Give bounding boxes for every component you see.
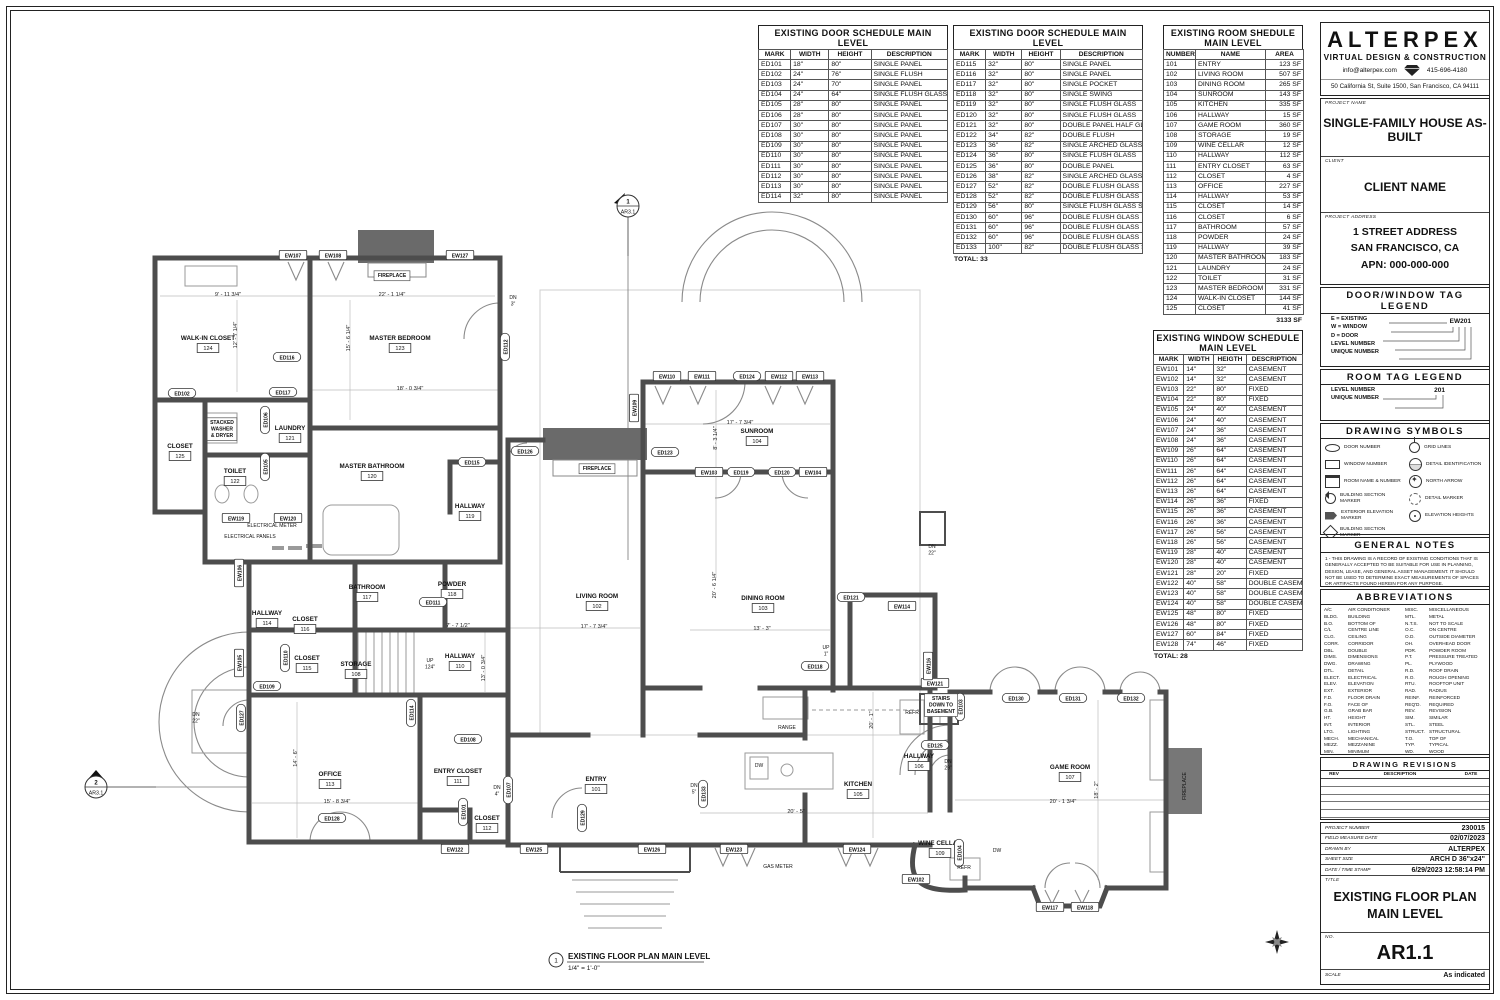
- client-name: CLIENT NAME: [1321, 164, 1489, 212]
- svg-text:104: 104: [752, 439, 761, 445]
- revision-header: REV: [1321, 772, 1347, 777]
- window-tag: EW110: [653, 371, 681, 380]
- room-label: CLOSET116: [292, 616, 318, 634]
- north-arrow-icon: [1265, 930, 1289, 954]
- svg-text:KITCHEN: KITCHEN: [844, 781, 872, 788]
- door-tag: ED123: [651, 447, 679, 456]
- abbreviation-row: EXT.EXTERIOR: [1324, 688, 1405, 695]
- plan-note: UP1": [823, 645, 831, 657]
- room-label: OFFICE113: [318, 771, 341, 789]
- room-label: KITCHEN105: [844, 781, 872, 799]
- svg-text:EW102: EW102: [908, 877, 925, 883]
- door-tag: ED107: [503, 776, 512, 804]
- abbreviation-row: MISC.MISCELLANEOUS: [1405, 607, 1486, 614]
- svg-text:OFFICE: OFFICE: [318, 771, 341, 778]
- plan-note: FIREPLACE: [1182, 771, 1188, 799]
- window-tag: EW114: [888, 601, 916, 610]
- svg-text:RANGE: RANGE: [778, 725, 796, 731]
- dimension-text: 18' - 0 3/4": [397, 386, 424, 392]
- door-tag: ED130: [1002, 693, 1030, 702]
- door-tag: ED133: [698, 780, 707, 808]
- symbol-label: GRID LINES: [1424, 445, 1451, 451]
- abbreviation-row: P.T.PRESSURE TREATED: [1405, 654, 1486, 661]
- plan-note: UP124": [425, 658, 435, 670]
- svg-text:EW121: EW121: [927, 681, 944, 687]
- symbol-item: NORTH ARROW: [1405, 473, 1489, 490]
- sheet-title: EXISTING FLOOR PLAN MAIN LEVEL: [1321, 883, 1489, 932]
- abbreviation-row: F.D.FLOOR DRAIN: [1324, 695, 1405, 702]
- svg-text:FIREPLACE: FIREPLACE: [1182, 771, 1188, 799]
- building-section-marker: 1AR3.1: [614, 193, 639, 256]
- symbol-label: DETAIL IDENTIFICATION: [1426, 462, 1481, 468]
- abbreviation-row: N.T.S.NOT TO SCALE: [1405, 621, 1486, 628]
- revisions-title: DRAWING REVISIONS: [1321, 758, 1489, 771]
- abbreviation-row: ELECT.ELECTRICAL: [1324, 675, 1405, 682]
- abbreviation-row: STRUCT.STRUCTURAL: [1405, 729, 1486, 736]
- dimension-text: 9' - 11 3/4": [215, 292, 241, 298]
- window-tag: EW106: [234, 559, 243, 587]
- window-tag: EW105: [234, 649, 243, 677]
- scale-label: SCALE: [1325, 973, 1341, 978]
- svg-text:125: 125: [175, 454, 184, 460]
- svg-text:TOILET: TOILET: [224, 468, 246, 475]
- svg-text:DN: DN: [509, 295, 517, 301]
- dimension-text: 20' - 6 1/4": [712, 572, 718, 599]
- gem-logo-icon: [1404, 65, 1420, 76]
- room-label: MASTER BEDROOM123: [369, 335, 430, 353]
- room-label: HALLWAY114: [252, 610, 283, 628]
- room-label: LAUNDRY121: [275, 425, 306, 443]
- svg-text:STORAGE: STORAGE: [340, 661, 371, 668]
- svg-text:114: 114: [263, 621, 272, 627]
- abbreviations: ABBREVIATIONS A/CAIR CONDITIONERBLDG.BUI…: [1320, 589, 1490, 755]
- abbreviation-row: OH.OVERHEAD DOOR: [1405, 641, 1486, 648]
- abbreviation-row: WD.WOOD: [1405, 749, 1486, 756]
- symbol-icon: [1325, 444, 1340, 452]
- abbreviation-row: CLG.CEILING: [1324, 634, 1405, 641]
- symbol-icon: [1409, 510, 1421, 522]
- svg-text:108: 108: [351, 672, 360, 678]
- abbreviation-row: BLDG.BUILDING: [1324, 614, 1405, 621]
- door-tag: ED104: [954, 839, 963, 867]
- svg-text:111: 111: [454, 779, 463, 785]
- svg-text:ED111: ED111: [426, 600, 441, 606]
- info-row: SHEET SIZEARCH D 36"x24": [1321, 855, 1489, 866]
- symbol-item: ROOM NAME & NUMBER: [1321, 473, 1405, 490]
- company-tagline: VIRTUAL DESIGN & CONSTRUCTION: [1321, 53, 1489, 62]
- info-row: DRAWN BYALTERPEX: [1321, 844, 1489, 855]
- abbreviations-title: ABBREVIATIONS: [1321, 590, 1489, 605]
- sheet-no-label: NO.: [1321, 933, 1489, 940]
- drawing-revisions: DRAWING REVISIONS REVDESCRIPTIONDATE: [1320, 757, 1490, 820]
- svg-text:EW111: EW111: [694, 374, 710, 380]
- svg-text:FIREPLACE: FIREPLACE: [583, 466, 612, 472]
- svg-text:ED125: ED125: [927, 743, 943, 749]
- info-row: DATE / TIME STAMP6/29/2023 12:58:14 PM: [1321, 865, 1489, 876]
- svg-text:123: 123: [395, 346, 404, 352]
- svg-text:DOWN TO: DOWN TO: [929, 702, 953, 708]
- revision-empty-row: [1321, 810, 1489, 818]
- room-label: MASTER BATHROOM120: [340, 463, 405, 481]
- door-tag: ED105: [260, 453, 269, 481]
- window-tag: EW109: [629, 394, 638, 422]
- window-tag: EW116: [923, 652, 932, 680]
- project-name: SINGLE-FAMILY HOUSE AS-BUILT: [1321, 106, 1489, 156]
- symbol-item: ELEVATION HEIGHTS: [1405, 507, 1489, 524]
- svg-text:LIVING ROOM: LIVING ROOM: [576, 593, 618, 600]
- window-tag: EW123: [720, 844, 748, 853]
- window-tag: EW107: [279, 250, 307, 259]
- svg-text:1/4" = 1'-0": 1/4" = 1'-0": [568, 965, 600, 972]
- building-section-marker: 2AR3.1: [85, 770, 156, 798]
- svg-text:ED109: ED109: [259, 684, 275, 690]
- door-tag: ED116: [273, 352, 301, 361]
- svg-text:EW122: EW122: [447, 847, 464, 853]
- svg-text:112: 112: [483, 826, 492, 832]
- symbol-label: EXTERIOR ELEVATION MARKER: [1341, 510, 1401, 521]
- room-legend-title: ROOM TAG LEGEND: [1321, 370, 1489, 385]
- symbol-icon: [1325, 493, 1336, 504]
- svg-text:109: 109: [935, 851, 944, 857]
- svg-text:DN: DN: [944, 759, 952, 765]
- plan-note: DN3": [509, 295, 517, 307]
- symbol-icon: [1409, 458, 1422, 471]
- room-legend-leaders: [1321, 385, 1491, 421]
- svg-text:EW103: EW103: [701, 470, 718, 476]
- svg-text:124": 124": [425, 664, 435, 670]
- dw-legend-title: DOOR/WINDOW TAG LEGEND: [1321, 288, 1489, 314]
- dimension-text: 20' - 1": [869, 711, 875, 728]
- door-tag: ED126: [511, 446, 539, 455]
- svg-text:ED129: ED129: [580, 810, 586, 826]
- plan-note: RANGE: [778, 725, 796, 731]
- door-tag: ED127: [236, 704, 245, 732]
- drawing-sheet: EXISTING DOOR SCHEDULE MAIN LEVELMARKWID…: [0, 0, 1500, 1000]
- symbol-label: DOOR NUMBER: [1344, 445, 1381, 451]
- svg-text:GAME ROOM: GAME ROOM: [1050, 764, 1090, 771]
- door-tag: ED121: [837, 592, 865, 601]
- symbol-item: DETAIL IDENTIFICATION: [1405, 456, 1489, 473]
- svg-text:115: 115: [303, 666, 312, 672]
- svg-text:EW116: EW116: [926, 658, 932, 674]
- room-label: CLOSET125: [167, 443, 193, 461]
- svg-text:ED115: ED115: [464, 460, 479, 466]
- svg-text:105: 105: [853, 792, 862, 798]
- svg-text:EW106: EW106: [237, 565, 243, 582]
- door-tag: ED111: [419, 597, 447, 606]
- symbol-label: NORTH ARROW: [1426, 479, 1462, 485]
- room-tag-legend: ROOM TAG LEGEND 201 LEVEL NUMBERUNIQUE N…: [1320, 369, 1490, 421]
- abbreviation-row: INT.INTERIOR: [1324, 722, 1405, 729]
- project-address: 1 STREET ADDRESS SAN FRANCISCO, CA APN: …: [1321, 220, 1489, 280]
- general-note-1: 1 - THIS DRAWING IS A RECORD OF EXISTING…: [1325, 556, 1485, 588]
- svg-text:EW124: EW124: [849, 847, 866, 853]
- room-label: POWDER118: [438, 581, 467, 599]
- abbreviation-row: HT.HEIGHT: [1324, 715, 1405, 722]
- abbreviation-row: DWG.DRAWING: [1324, 661, 1405, 668]
- door-tag: ED120: [768, 467, 796, 476]
- svg-text:ED131: ED131: [1065, 696, 1081, 702]
- svg-text:EW104: EW104: [805, 470, 822, 476]
- svg-text:WASHER: WASHER: [211, 426, 233, 432]
- svg-text:CLOSET: CLOSET: [167, 443, 193, 450]
- door-tag: ED128: [318, 813, 346, 822]
- svg-text:DINING ROOM: DINING ROOM: [741, 595, 784, 602]
- abbreviation-row: ELEV.ELEVATION: [1324, 681, 1405, 688]
- door-tag: ED131: [1059, 693, 1087, 702]
- abbreviation-row: RAD.RADIUS: [1405, 688, 1486, 695]
- svg-text:ED123: ED123: [657, 450, 673, 456]
- svg-text:MASTER BEDROOM: MASTER BEDROOM: [369, 335, 430, 342]
- svg-text:MASTER BATHROOM: MASTER BATHROOM: [340, 463, 405, 470]
- svg-text:ED103: ED103: [958, 699, 964, 715]
- symbols-title: DRAWING SYMBOLS: [1321, 424, 1489, 439]
- door-tag: ED117: [269, 387, 297, 396]
- dimension-text: 12' - 7 1/4": [233, 322, 239, 349]
- svg-text:22": 22": [928, 550, 936, 556]
- symbol-label: ROOM NAME & NUMBER: [1344, 479, 1401, 485]
- svg-text:ED128: ED128: [324, 816, 340, 822]
- svg-text:ED124: ED124: [739, 374, 755, 380]
- svg-text:ED106: ED106: [263, 412, 269, 428]
- window-tag: EW122: [441, 844, 469, 853]
- svg-text:ED105: ED105: [263, 459, 269, 475]
- door-tag: ED102: [168, 388, 196, 397]
- abbreviation-row: MECH.MECHANICAL: [1324, 736, 1405, 743]
- svg-text:118: 118: [448, 592, 457, 598]
- general-notes-title: GENERAL NOTES: [1321, 538, 1489, 553]
- svg-text:ED130: ED130: [1008, 696, 1024, 702]
- title-block: ALTERPEX VIRTUAL DESIGN & CONSTRUCTION i…: [1320, 22, 1492, 985]
- symbol-icon: [1325, 512, 1337, 520]
- svg-text:STACKED: STACKED: [210, 420, 234, 426]
- dimension-text: 22' - 1 1/4": [379, 292, 406, 298]
- dimension-text: 13' - 0 3/4": [481, 655, 487, 682]
- svg-text:STAIRS: STAIRS: [932, 696, 951, 702]
- svg-text:HALLWAY: HALLWAY: [252, 610, 283, 617]
- company-name: ALTERPEX: [1321, 27, 1489, 53]
- window-tag: EW127: [446, 250, 474, 259]
- abbreviation-row: F.O.FACE OF: [1324, 702, 1405, 709]
- svg-text:EW109: EW109: [632, 400, 638, 417]
- window-tag: EW111: [688, 371, 716, 380]
- svg-text:113: 113: [326, 782, 335, 788]
- room-label: ENTRY CLOSET111: [434, 768, 482, 786]
- revision-header: DATE: [1453, 772, 1489, 777]
- plan-note: STACKEDWASHER& DRYER: [207, 418, 237, 441]
- svg-text:103: 103: [758, 606, 767, 612]
- minor-walls: [560, 512, 958, 872]
- symbol-item: EXTERIOR ELEVATION MARKER: [1321, 507, 1405, 524]
- dimension-text: 15' - 8 3/4": [324, 799, 351, 805]
- revision-header: DESCRIPTION: [1347, 772, 1453, 777]
- svg-text:ED119: ED119: [733, 470, 748, 476]
- abbreviation-row: DIMS.DIMENSIONS: [1324, 654, 1405, 661]
- dimension-text: 20' - 5": [787, 809, 804, 815]
- plan-note: DN22": [192, 712, 200, 724]
- svg-text:DW: DW: [755, 763, 764, 769]
- symbol-item: BUILDING SECTION MARKER: [1321, 490, 1405, 507]
- svg-text:5": 5": [692, 789, 697, 795]
- window-tag: EW124: [843, 844, 871, 853]
- svg-text:& DRYER: & DRYER: [211, 433, 234, 439]
- walls: [155, 258, 1166, 906]
- svg-text:HALLWAY: HALLWAY: [904, 753, 935, 760]
- dimension-text: 14' - 6": [293, 749, 299, 766]
- svg-text:1: 1: [554, 958, 558, 965]
- svg-text:ELECTRICAL METER: ELECTRICAL METER: [247, 523, 297, 529]
- door-tag: ED114: [406, 699, 415, 727]
- svg-text:106: 106: [914, 764, 923, 770]
- svg-text:EW125: EW125: [526, 847, 543, 853]
- scale-value: As indicated: [1443, 972, 1485, 979]
- svg-text:ENTRY CLOSET: ENTRY CLOSET: [434, 768, 482, 775]
- door-tag: ED129: [577, 804, 586, 832]
- svg-text:EW120: EW120: [280, 516, 297, 522]
- abbreviation-row: RTU.ROOFTOP UNIT: [1405, 681, 1486, 688]
- svg-text:POWDER: POWDER: [438, 581, 467, 588]
- company-block: ALTERPEX VIRTUAL DESIGN & CONSTRUCTION i…: [1320, 22, 1490, 96]
- room-label: GAME ROOM107: [1050, 764, 1090, 782]
- symbol-label: ELEVATION HEIGHTS: [1425, 513, 1474, 519]
- svg-text:EW127: EW127: [452, 253, 469, 259]
- section-cut-lines: [107, 217, 628, 787]
- room-label: ENTRY101: [585, 776, 607, 794]
- svg-text:ELECTRICAL PANELS: ELECTRICAL PANELS: [224, 534, 276, 540]
- svg-text:AR3.1: AR3.1: [621, 210, 636, 216]
- svg-text:EW110: EW110: [659, 374, 675, 380]
- svg-text:AR3.1: AR3.1: [89, 791, 104, 797]
- abbreviation-row: LTG.LIGHTING: [1324, 729, 1405, 736]
- door-tag: ED101: [458, 798, 467, 826]
- sheet-info-block: PROJECT NUMBER230015FIELD MEASURE DATE02…: [1320, 822, 1490, 985]
- plan-note: ELECTRICAL METER: [247, 523, 297, 529]
- window-tag: EW118: [1071, 902, 1099, 911]
- window-tag: EW126: [638, 844, 666, 853]
- roof-outline: [540, 290, 920, 735]
- svg-text:121: 121: [285, 436, 294, 442]
- svg-text:EW112: EW112: [771, 374, 787, 380]
- svg-text:3": 3": [511, 301, 516, 307]
- svg-text:WALK-IN CLOSET: WALK-IN CLOSET: [181, 335, 235, 342]
- dimension-text: 13' - 3": [753, 626, 770, 632]
- window-tag: EW112: [765, 371, 793, 380]
- svg-text:EW114: EW114: [894, 604, 910, 610]
- svg-text:ED108: ED108: [460, 737, 476, 743]
- abbreviation-row: R.D.ROOF DRAIN: [1405, 668, 1486, 675]
- symbol-icon: [1409, 442, 1420, 453]
- abbreviation-row: REV.REVISION: [1405, 708, 1486, 715]
- abbreviation-row: DTL.DETAIL: [1324, 668, 1405, 675]
- svg-text:EXISTING FLOOR PLAN MAIN LEVEL: EXISTING FLOOR PLAN MAIN LEVEL: [568, 952, 710, 961]
- abbreviation-row: CORR.CORRIDOR: [1324, 641, 1405, 648]
- svg-text:ED133: ED133: [701, 786, 707, 802]
- abbreviation-row: TYP.TYPICAL: [1405, 742, 1486, 749]
- plan-note: STAIRSDOWN TOBASEMENT: [925, 694, 958, 717]
- abbreviation-row: C/LCENTRE LINE: [1324, 627, 1405, 634]
- svg-text:107: 107: [1065, 775, 1074, 781]
- svg-text:EW108: EW108: [325, 253, 342, 259]
- room-label: LIVING ROOM102: [576, 593, 618, 611]
- svg-text:ED120: ED120: [774, 470, 790, 476]
- info-row: PROJECT NUMBER230015: [1321, 823, 1489, 834]
- info-row: FIELD MEASURE DATE02/07/2023: [1321, 834, 1489, 845]
- svg-text:116: 116: [301, 627, 310, 633]
- svg-text:REFR: REFR: [957, 865, 971, 871]
- svg-text:ED132: ED132: [1123, 696, 1139, 702]
- company-address: 50 California St, Suite 1500, San Franci…: [1321, 79, 1489, 90]
- project-address-label: PROJECT ADDRESS: [1321, 213, 1489, 220]
- sheet-number: AR1.1: [1321, 940, 1489, 969]
- symbol-label: BUILDING SECTION MARKER: [1340, 493, 1400, 504]
- sheet-title-label: TITLE: [1321, 876, 1489, 883]
- window-tag: EW103: [695, 467, 723, 476]
- room-label: HALLWAY119: [455, 503, 486, 521]
- room-label: SUNROOM104: [741, 428, 774, 446]
- abbreviation-row: SIM.SIMILAR: [1405, 715, 1486, 722]
- room-label: DINING ROOM103: [741, 595, 784, 613]
- svg-text:22": 22": [192, 718, 200, 724]
- svg-text:117: 117: [363, 595, 372, 601]
- svg-text:BATHROOM: BATHROOM: [349, 584, 386, 591]
- svg-text:ED112: ED112: [503, 339, 509, 354]
- door-tag: ED109: [253, 681, 281, 690]
- door-tag: ED119: [727, 467, 755, 476]
- abbreviation-row: A/CAIR CONDITIONER: [1324, 607, 1405, 614]
- plan-note: REFR: [957, 865, 971, 871]
- svg-text:DN: DN: [928, 544, 936, 550]
- window-tag: EW125: [520, 844, 548, 853]
- svg-text:LAUNDRY: LAUNDRY: [275, 425, 306, 432]
- plan-note: DN4": [493, 785, 501, 797]
- svg-text:120: 120: [367, 474, 376, 480]
- dimension-text: 8' - 3 1/4": [713, 426, 719, 450]
- room-label: WALK-IN CLOSET124: [181, 335, 235, 353]
- svg-text:SUNROOM: SUNROOM: [741, 428, 774, 435]
- plan-caption: 1EXISTING FLOOR PLAN MAIN LEVEL1/4" = 1'…: [549, 952, 710, 972]
- company-email: info@alterpex.com: [1343, 67, 1397, 74]
- svg-text:ED107: ED107: [506, 782, 512, 798]
- svg-text:ED116: ED116: [279, 355, 294, 361]
- abbreviation-row: MTL.METAL: [1405, 614, 1486, 621]
- symbol-item: DETAIL MARKER: [1405, 490, 1489, 507]
- client-label: CLIENT: [1321, 157, 1489, 164]
- svg-text:DN: DN: [192, 712, 200, 718]
- abbreviation-row: DBL.DOUBLE: [1324, 648, 1405, 655]
- window-tag: EW120: [274, 513, 302, 522]
- abbreviation-row: REINF.REINFORCED: [1405, 695, 1486, 702]
- svg-text:CLOSET: CLOSET: [294, 655, 320, 662]
- company-phone: 415-696-4180: [1427, 67, 1467, 74]
- plan-note: FIREPLACE: [374, 271, 410, 281]
- svg-text:EW113: EW113: [802, 374, 818, 380]
- door-tag: ED106: [260, 406, 269, 434]
- plan-note: DN29": [944, 759, 952, 771]
- project-name-label: PROJECT NAME: [1321, 99, 1489, 106]
- door-tag: ED132: [1117, 693, 1145, 702]
- plan-note: DW: [993, 848, 1002, 854]
- svg-text:DN: DN: [493, 785, 501, 791]
- svg-text:ED102: ED102: [174, 391, 190, 397]
- abbreviation-row: MEZZ.MEZZANINE: [1324, 742, 1405, 749]
- svg-text:UP: UP: [823, 645, 831, 651]
- plan-note: GAS METER: [763, 864, 793, 870]
- svg-text:ED127: ED127: [239, 710, 245, 726]
- room-label: TOILET122: [224, 468, 246, 486]
- door-tag: ED124: [733, 371, 761, 380]
- abbreviation-row: R.O.ROUGH OPENING: [1405, 675, 1486, 682]
- plan-note: DN5": [690, 783, 698, 795]
